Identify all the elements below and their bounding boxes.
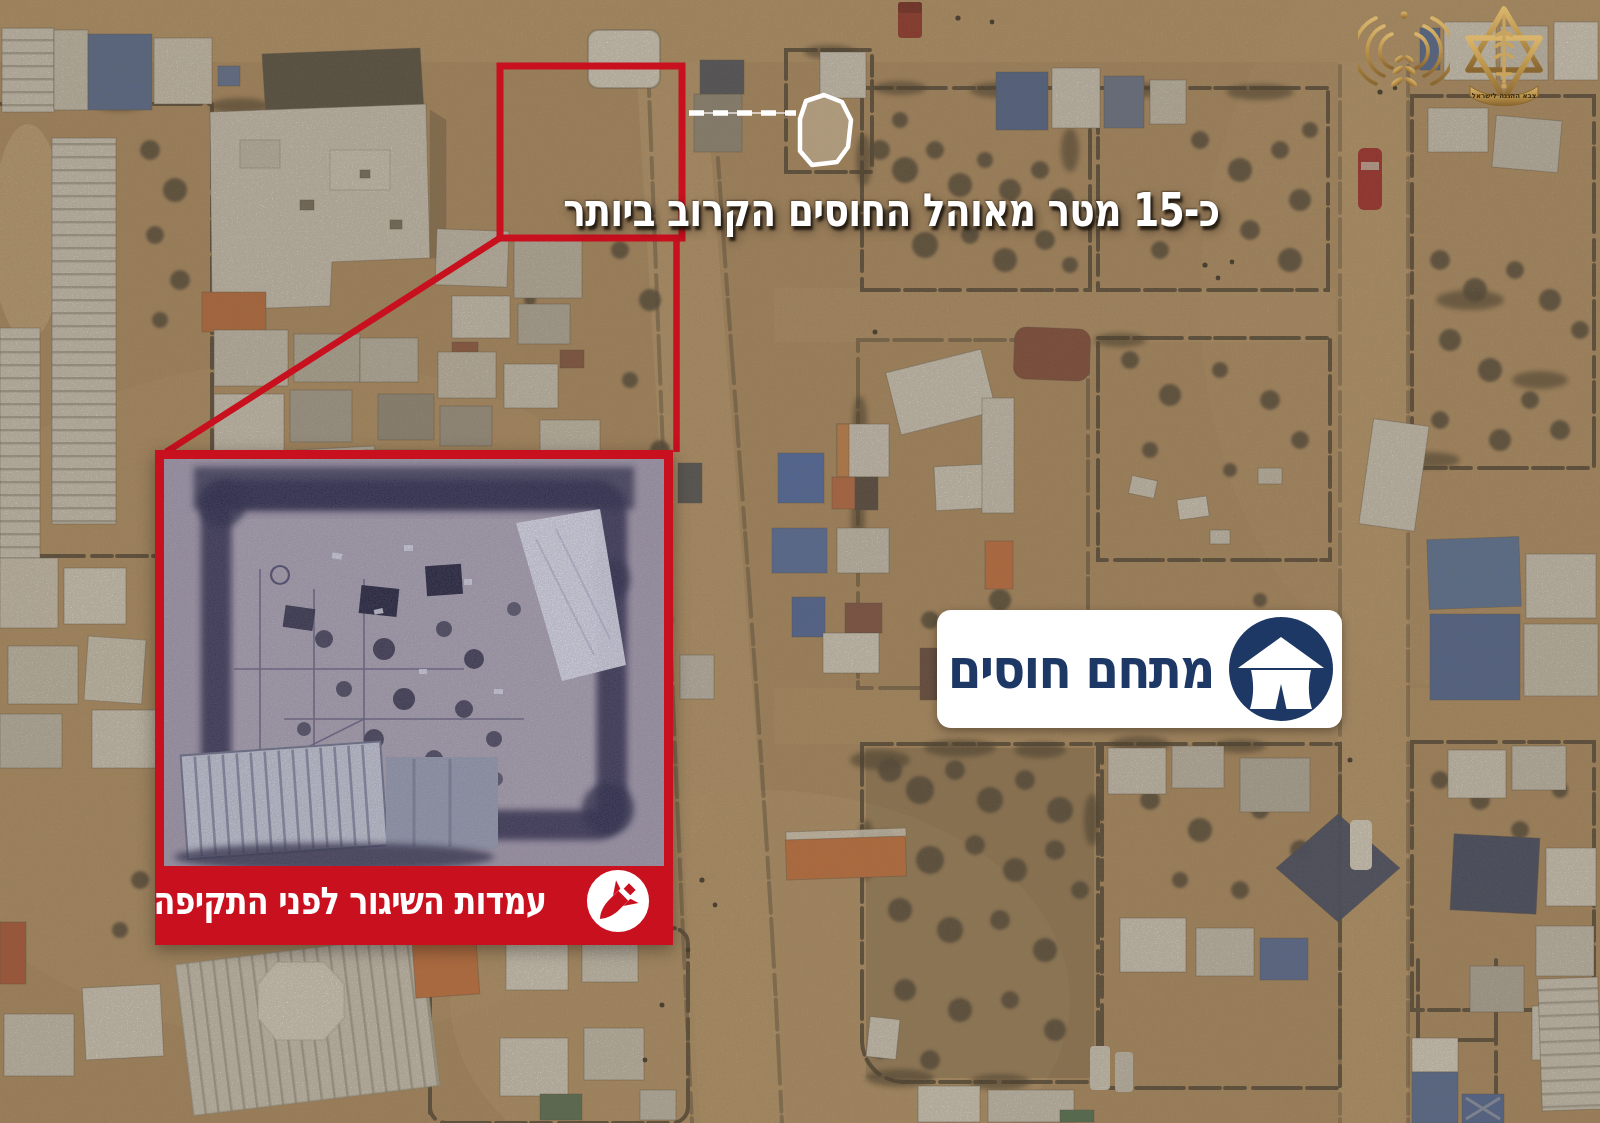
distance-annotation-text: כ-15 מטר מאוהל החוסים הקרוב ביותר	[711, 183, 1219, 237]
inset-caption-bar: עמדות השיגור לפני התקיפה	[164, 866, 664, 936]
launch-site-zoom-image	[164, 459, 664, 866]
annotated-satellite-map: כ-15 מטר מאוהל החוסים הקרוב ביותר	[0, 0, 1600, 1123]
tent-icon	[1228, 616, 1334, 722]
idf-banner-text: צבא ההגנה לישראל	[1472, 92, 1537, 100]
idf-emblem-icon: צבא ההגנה לישראל	[1454, 4, 1554, 110]
inset-caption-text: עמדות השיגור לפני התקיפה	[154, 879, 547, 923]
compound-label-text: מתחם חוסים	[947, 638, 1213, 701]
strike-inset-panel: עמדות השיגור לפני התקיפה	[155, 450, 673, 945]
logo-group: צבא ההגנה לישראל	[1358, 4, 1554, 110]
rocket-icon	[586, 869, 650, 933]
displaced-compound-label: מתחם חוסים	[937, 610, 1342, 728]
idf-spokesperson-antenna-icon	[1358, 4, 1450, 104]
